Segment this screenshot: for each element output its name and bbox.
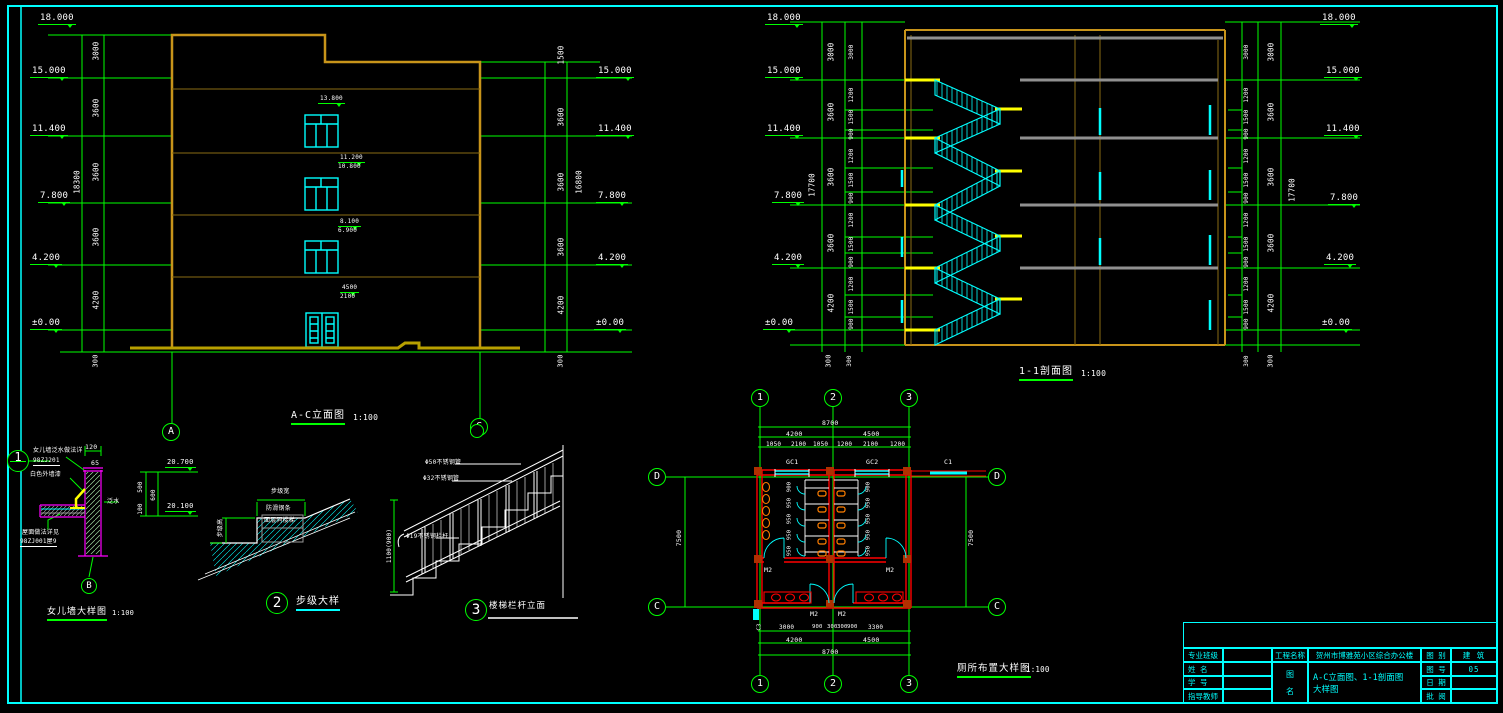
dim-label: 1100(900) [387, 529, 393, 563]
dim-label: 1050 [766, 442, 781, 448]
dim-label: 900 [1244, 192, 1250, 203]
dim-label: 950 [787, 530, 793, 541]
dim-label: 1200 [849, 276, 855, 291]
dim-label: 1500 [849, 299, 855, 314]
dim-label: 3600 [827, 103, 835, 122]
step-title: 步级大样 [296, 597, 340, 611]
level-label: 13.800 [318, 96, 345, 104]
dim-label: 4200 [92, 291, 100, 310]
dim-label: 900 [849, 256, 855, 267]
tb-value-advisor [1223, 689, 1272, 703]
level-label: 18.000 [765, 14, 803, 25]
dim-label: 950 [787, 546, 793, 557]
dim-label: 2100 [791, 442, 806, 448]
dim-label: 1200 [849, 212, 855, 227]
level-label: 11.400 [765, 125, 803, 136]
railing-linework [390, 445, 578, 618]
dim-label: 7500 [676, 530, 683, 546]
level-label: 4.200 [596, 254, 628, 265]
level-label: ±0.00 [594, 319, 626, 330]
axis-bubble-D: D [988, 468, 1006, 486]
dim-label: 900 [1244, 128, 1250, 139]
dim-label: 3600 [1267, 103, 1275, 122]
dim-label: 1200 [837, 442, 852, 448]
tb-value-category: 建 筑 [1451, 648, 1497, 662]
axis-bubble-A: A [162, 423, 180, 441]
level-label: 15.000 [765, 67, 803, 78]
bubble-label: B [86, 582, 91, 591]
title-block-top-band [1183, 622, 1497, 648]
dim-label: 500 [138, 481, 144, 492]
dim-label: 3600 [1267, 234, 1275, 253]
tb-label-drawing-name: 图 名 [1272, 662, 1308, 703]
detail-bubble-2: 2 [266, 592, 288, 614]
dim-label: 1500 [849, 109, 855, 124]
dim-label: 950 [866, 546, 872, 557]
bubble-label: 1 [757, 393, 763, 403]
level-label: 11.400 [596, 125, 634, 136]
dim-label: 4200 [786, 637, 802, 644]
tb-value-number [1223, 676, 1272, 689]
dim-label: C1 [944, 459, 952, 466]
dim-label: 4200 [827, 294, 835, 313]
dim-label: 950 [787, 514, 793, 525]
level-label: 7.800 [38, 192, 70, 203]
dim-label: 1200 [849, 148, 855, 163]
section-stair-flights [935, 80, 1000, 345]
axis-bubble-C: C [988, 598, 1006, 616]
axis-bubble-1: 1 [751, 389, 769, 407]
dim-label: 950 [866, 498, 872, 509]
bubble-label: 2 [273, 596, 282, 610]
toilet-title: 厕所布置大样图 [957, 664, 1031, 678]
level-label: 7.800 [596, 192, 628, 203]
tb-label-number: 学 号 [1183, 676, 1223, 689]
dim-label: GC1 [786, 459, 798, 466]
level-label: 15.000 [1324, 67, 1362, 78]
level-label: 11.200 [338, 155, 365, 163]
dim-label: 3300 [868, 625, 883, 631]
dim-label: 950 [787, 498, 793, 509]
level-label: ±0.00 [763, 319, 795, 330]
dim-label: M2 [838, 611, 846, 618]
bubble-label: 1 [14, 451, 21, 463]
tb-label-date: 日 期 [1421, 676, 1451, 689]
level-label: 4500 [340, 285, 359, 293]
elevation-door [306, 313, 338, 347]
dim-label: 3600 [557, 173, 565, 192]
dim-label: 3600 [1267, 168, 1275, 187]
dim-label: 泛水 [107, 499, 119, 505]
dim-label: 100 [138, 503, 144, 514]
tb-value-drawing-name: A-C立面图、1-1剖面图 大样图 [1308, 662, 1421, 703]
axis-bubble-1: 1 [751, 675, 769, 693]
toilet-scale: 1:100 [1026, 666, 1050, 674]
dim-label: 4500 [863, 637, 879, 644]
dim-label: 98ZJ001屋9 [20, 539, 57, 547]
level-label: 18.000 [1320, 14, 1358, 25]
dim-label: M2 [810, 611, 818, 618]
bubble-label: 3 [906, 393, 912, 403]
dim-label: 17700 [808, 173, 816, 197]
dim-label: 1200 [890, 442, 905, 448]
dim-label: 女儿墙泛水做法详 [33, 448, 83, 454]
dim-label: 3600 [557, 108, 565, 127]
dim-label: 300 [558, 354, 565, 367]
bubble-label: 3 [906, 679, 912, 689]
dim-label: 1200 [1244, 212, 1250, 227]
dim-label: Φ50不锈钢管 [425, 460, 461, 466]
dim-label: 3600 [92, 99, 100, 118]
dim-label: 3600 [557, 238, 565, 257]
dim-label: 300 [837, 625, 848, 631]
dim-label: 18300 [73, 170, 81, 194]
tb-label-category: 图 别 [1421, 648, 1451, 662]
dim-label: 950 [866, 514, 872, 525]
dim-label: 6.900 [338, 228, 357, 234]
dim-label: 300 [1244, 355, 1250, 366]
level-label: 7.800 [772, 192, 804, 203]
dim-label: 900 [812, 625, 823, 631]
dim-label: 300 [1268, 354, 1275, 367]
dim-label: 7500 [968, 530, 975, 546]
dim-label: 防滑钢条 [266, 506, 291, 512]
dim-label: 4200 [1267, 294, 1275, 313]
detail-bubble-1: 1 [7, 450, 29, 472]
dim-label: 900 [787, 482, 793, 493]
cad-drawing-sheet: 专业班级 姓 名 学 号 指导教师 工程名称 贺州市博雅苑小区综合办公楼 图 名… [0, 0, 1503, 713]
section-scale: 1:100 [1081, 370, 1106, 378]
dim-label: C3 [757, 623, 763, 630]
bubble-label: 2 [830, 679, 836, 689]
dim-label: 4500 [863, 431, 879, 438]
stall-partitions [805, 480, 858, 556]
dim-label: 900 [849, 318, 855, 329]
level-label: 8.100 [338, 219, 361, 227]
cad-linework [0, 0, 1503, 713]
dim-label: 600 [151, 489, 157, 500]
axis-bubble-C: C [648, 598, 666, 616]
tb-label-advisor: 指导教师 [1183, 689, 1223, 703]
dim-label: 300 [93, 354, 100, 367]
axis-bubble-2: 2 [824, 389, 842, 407]
dim-label: 步级宽 [271, 489, 290, 495]
detail-bubble-3: 3 [465, 599, 487, 621]
tb-drawing-name-line1: A-C立面图、1-1剖面图 [1313, 671, 1420, 683]
dim-label: 1500 [849, 172, 855, 187]
dim-label: 1200 [1244, 87, 1250, 102]
level-label: 4.200 [30, 254, 62, 265]
dim-label: 3000 [1244, 44, 1250, 59]
level-label: 20.700 [165, 459, 196, 468]
dim-label: 3000 [779, 625, 794, 631]
level-label: 7.800 [1328, 194, 1360, 205]
dim-label: M2 [886, 567, 894, 574]
level-label: 11.400 [30, 125, 68, 136]
dim-label: 900 [849, 192, 855, 203]
bubble-label: 1 [757, 679, 763, 689]
dim-label: 300 [827, 625, 838, 631]
axis-bubble-B: B [81, 578, 97, 594]
dim-label: 3600 [92, 163, 100, 182]
dim-label: 950 [866, 530, 872, 541]
axis-bubble-D: D [648, 468, 666, 486]
dim-label: 900 [1244, 318, 1250, 329]
dim-label: 1200 [1244, 276, 1250, 291]
tb-value-project: 贺州市博雅苑小区综合办公楼 [1308, 648, 1421, 662]
dim-label: 2100 [863, 442, 878, 448]
tb-label-sheet-no: 图 号 [1421, 662, 1451, 676]
dim-label: 900 [1244, 256, 1250, 267]
dim-label: 1500 [1244, 236, 1250, 251]
level-label: 4.200 [1324, 254, 1356, 265]
dim-label: 1200 [849, 87, 855, 102]
dim-label: 屋面做法详见 [22, 530, 59, 536]
detail-marker-circle [470, 424, 484, 438]
dim-label: 2100 [340, 294, 355, 300]
bubble-label: 3 [472, 603, 481, 617]
dim-label: 1050 [813, 442, 828, 448]
tb-value-class [1223, 648, 1272, 662]
axis-bubble-3: 3 [900, 389, 918, 407]
dim-label: Φ32不锈钢管 [423, 476, 459, 482]
urinals [763, 483, 770, 540]
level-label: 18.000 [38, 14, 76, 25]
bubble-label: D [994, 472, 1000, 482]
dim-label: 900 [847, 625, 858, 631]
dim-label: 1500 [1244, 172, 1250, 187]
level-label: 20.100 [165, 503, 196, 512]
dim-label: 1500 [1244, 109, 1250, 124]
plan-corner-window [753, 609, 759, 620]
dim-label: 1200 [1244, 148, 1250, 163]
dim-label: 白色外墙漆 [30, 472, 61, 478]
level-label: 4.200 [772, 254, 804, 265]
dim-label: 3000 [849, 44, 855, 59]
dim-label: M2 [764, 567, 772, 574]
tb-drawing-label-char1: 图 [1286, 669, 1294, 680]
dim-label: GC2 [866, 459, 878, 466]
dim-label: 300 [826, 354, 833, 367]
bubble-label: C [994, 602, 1000, 612]
bubble-label: A [168, 427, 174, 437]
tb-value-date [1451, 676, 1497, 689]
axis-bubble-2: 2 [824, 675, 842, 693]
elevation-scale: 1:100 [353, 414, 378, 422]
elevation-windows [305, 115, 338, 347]
tb-value-sheet-no: 05 [1451, 662, 1497, 676]
dim-label: 98ZJ201 [33, 458, 60, 466]
section-title: 1-1剖面图 [1019, 367, 1073, 381]
dim-label: 65 [91, 460, 99, 467]
tb-drawing-name-line2: 大样图 [1313, 683, 1420, 695]
squat-toilets [818, 491, 845, 556]
dim-label: 900 [866, 482, 872, 493]
bubble-label: C [654, 602, 660, 612]
tb-value-name [1223, 662, 1272, 676]
level-label: ±0.00 [1320, 319, 1352, 330]
dim-label: 1500 [557, 46, 565, 65]
dim-label: 面层同楼梯 [264, 518, 295, 524]
parapet-scale: 1:100 [112, 610, 134, 617]
axis-bubble-3: 3 [900, 675, 918, 693]
dim-label: 8700 [822, 420, 838, 427]
dim-label: 1500 [849, 236, 855, 251]
level-label: 15.000 [596, 67, 634, 78]
tb-label-name: 姓 名 [1183, 662, 1223, 676]
tb-label-project: 工程名称 [1272, 648, 1308, 662]
dim-label: 8700 [822, 649, 838, 656]
level-label: ±0.00 [30, 319, 62, 330]
dim-label: 300 [847, 355, 853, 366]
dim-label: 3600 [827, 168, 835, 187]
dim-label: 10.800 [338, 164, 361, 170]
tb-label-class: 专业班级 [1183, 648, 1223, 662]
level-label: 11.400 [1324, 125, 1362, 136]
dim-label: 3000 [1267, 43, 1275, 62]
dim-label: 3000 [92, 42, 100, 61]
bubble-label: D [654, 472, 660, 482]
dim-label: 3000 [827, 43, 835, 62]
tb-drawing-label-char2: 名 [1286, 686, 1294, 697]
dim-label: 900 [849, 128, 855, 139]
dim-label: Φ19不锈钢栏杆 [406, 534, 448, 540]
dim-label: 4200 [786, 431, 802, 438]
dim-label: 16800 [575, 170, 583, 194]
level-label: 15.000 [30, 67, 68, 78]
dim-label: 步级高 [218, 519, 224, 538]
dim-label: 3600 [92, 228, 100, 247]
parapet-title: 女儿墙大样图 [47, 608, 107, 621]
dim-label: 17700 [1288, 178, 1296, 202]
dim-label: 120 [85, 444, 97, 451]
dim-label: 1500 [1244, 299, 1250, 314]
tb-value-review [1451, 689, 1497, 703]
elevation-title: A-C立面图 [291, 411, 345, 425]
railing-title: 楼梯栏杆立面 [489, 602, 546, 611]
bubble-label: 2 [830, 393, 836, 403]
dim-label: 4200 [557, 296, 565, 315]
tb-label-review: 批 阅 [1421, 689, 1451, 703]
dim-label: 3600 [827, 234, 835, 253]
